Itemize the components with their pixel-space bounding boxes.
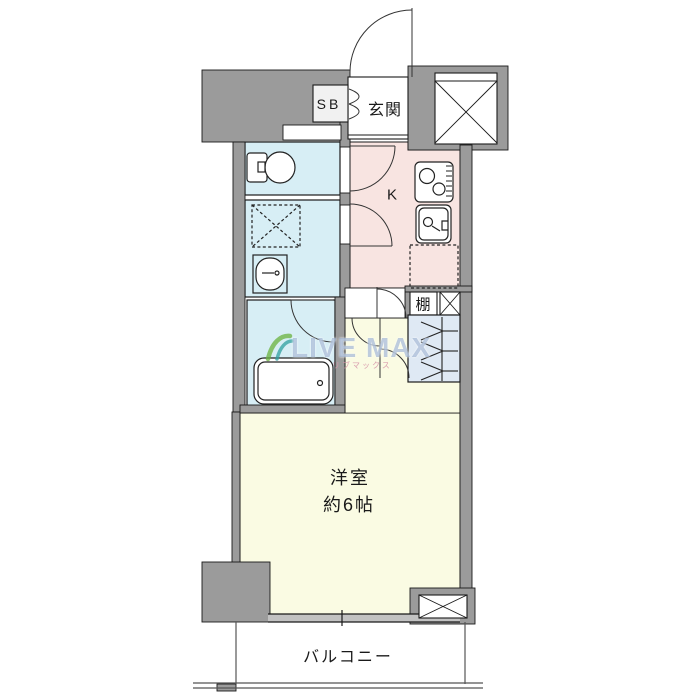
wall-sanitary-bottom [240, 405, 345, 413]
label-balcony: バルコニー [303, 643, 393, 667]
watermark-subtext: リブマックス [332, 360, 392, 371]
wall-left-upper [233, 142, 245, 412]
storage-nook-box [283, 125, 341, 140]
wall-pillar-bottom-left [202, 562, 270, 622]
label-kitchen: K [387, 187, 397, 204]
gas-stove-icon [415, 162, 453, 202]
label-room-size: 約6帖 [323, 491, 375, 517]
floorplan-image: SB 玄関 K 棚 洋室 約6帖 バルコニー LIVE MAX リブマックス [0, 0, 700, 700]
label-shelf: 棚 [415, 294, 430, 315]
wall-left-lower [232, 412, 240, 566]
wall-shelf-top [405, 286, 472, 292]
toilet-icon [247, 152, 295, 183]
label-shoe-box: SB [317, 96, 342, 112]
wall-right [460, 145, 472, 592]
kitchen-sink-icon [416, 205, 451, 243]
label-entrance: 玄関 [368, 96, 402, 120]
bathtub-icon [254, 358, 333, 404]
wall-sanitary-right-2 [340, 193, 350, 205]
entrance-door-swing [350, 8, 412, 77]
inner-hall-floor [345, 288, 405, 318]
label-room-name: 洋室 [330, 464, 370, 490]
